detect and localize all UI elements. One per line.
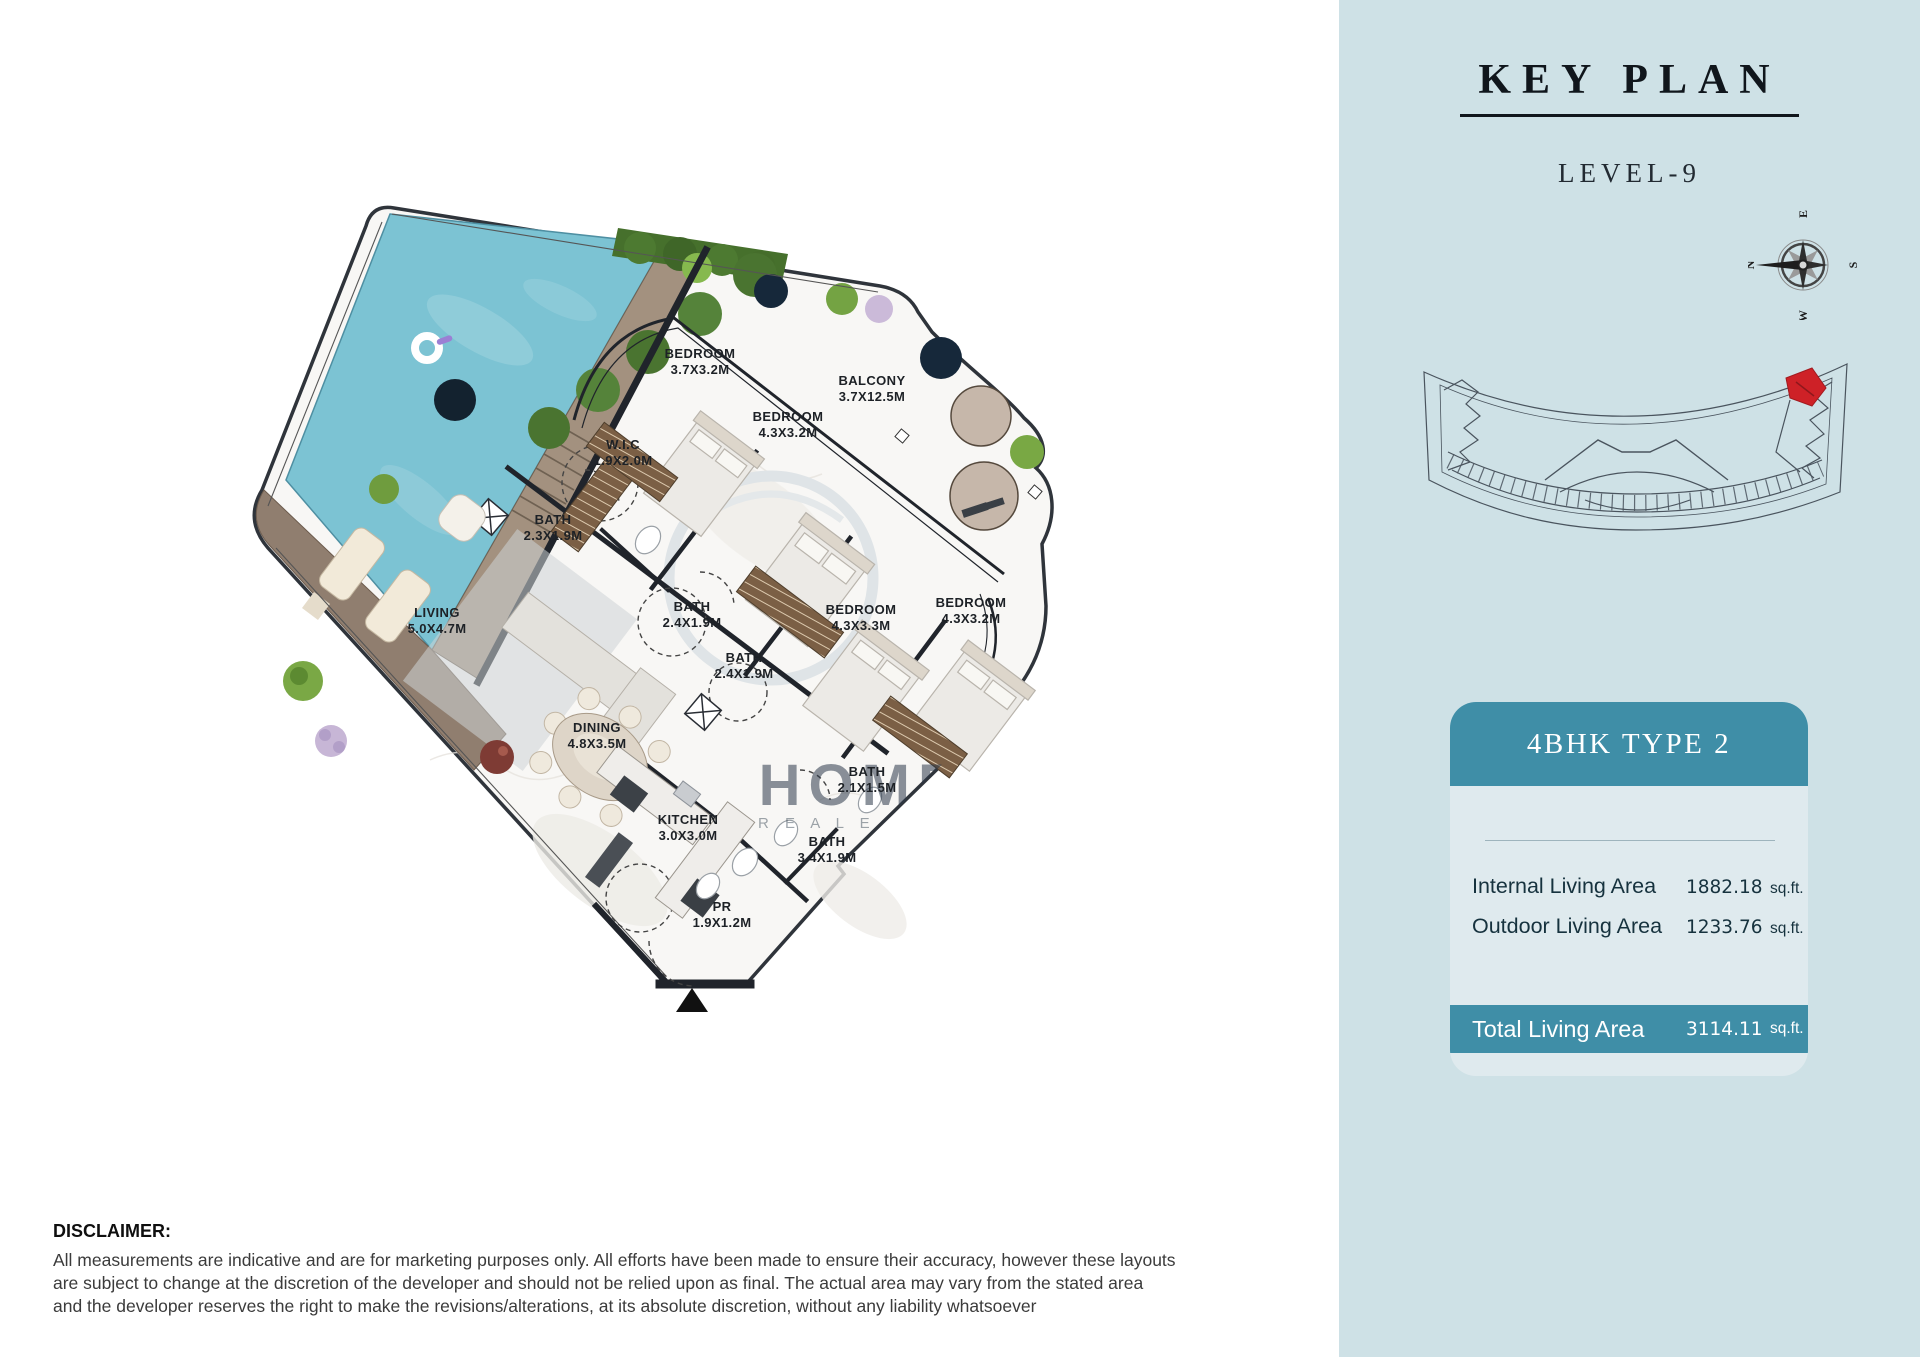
room-dimensions: 5.0X4.7M <box>408 621 467 636</box>
info-panel: KEY PLAN LEVEL-9 N E S W <box>1339 0 1920 1357</box>
total-area-value: 3114.11 <box>1686 1019 1758 1040</box>
unit-type-header: 4BHK TYPE 2 <box>1450 702 1808 786</box>
room-dimensions: 4.3X3.2M <box>759 425 818 440</box>
planter-circle <box>920 337 962 379</box>
internal-area-label: Internal Living Area <box>1472 874 1686 899</box>
total-area-band: Total Living Area 3114.11 sq.ft. <box>1450 1005 1808 1053</box>
outdoor-area-unit: sq.ft. <box>1770 920 1804 938</box>
room-dimensions: 3.4X1.9M <box>798 850 857 865</box>
svg-text:S: S <box>1846 261 1858 268</box>
room-dimensions: 3.0X3.0M <box>659 828 718 843</box>
room-dimensions: 2.4X1.9M <box>715 666 774 681</box>
outdoor-area-row: Outdoor Living Area 1233.76 sq.ft. <box>1450 914 1808 939</box>
room-label: BALCONY <box>838 373 905 388</box>
key-plan-title: KEY PLAN <box>1339 56 1920 117</box>
outdoor-area-value: 1233.76 <box>1686 917 1758 938</box>
disclaimer-line: All measurements are indicative and are … <box>53 1249 1333 1272</box>
tree-icon <box>1010 435 1044 469</box>
room-dimensions: 3.7X12.5M <box>839 389 905 404</box>
level-label: LEVEL-9 <box>1339 158 1920 189</box>
room-dimensions: 1.9X2.0M <box>594 453 653 468</box>
room-label: DINING <box>573 720 621 735</box>
room-dimensions: 2.3X1.9M <box>524 528 583 543</box>
room-dimensions: 4.8X3.5M <box>568 736 627 751</box>
room-label: BEDROOM <box>753 409 824 424</box>
flower-bush-icon <box>315 725 347 757</box>
room-dimensions: 4.3X3.2M <box>942 611 1001 626</box>
seating-pod <box>950 462 1018 530</box>
room-dimensions: 4.3X3.3M <box>832 618 891 633</box>
unit-summary-card: 4BHK TYPE 2 Internal Living Area 1882.18… <box>1450 702 1808 1076</box>
flower-bush-icon <box>865 295 893 323</box>
floor-plan: HOMES R E A L E S T A T E BEDROOM3.7X3.2… <box>0 0 1339 1357</box>
floor-plan-svg: HOMES R E A L E S T A T E BEDROOM3.7X3.2… <box>0 0 1339 1357</box>
planter-circle <box>754 274 788 308</box>
room-dimensions: 2.4X1.9M <box>663 615 722 630</box>
room-dimensions: 3.7X3.2M <box>671 362 730 377</box>
total-area-label: Total Living Area <box>1472 1016 1686 1043</box>
bush-icon <box>369 474 399 504</box>
room-label: BEDROOM <box>936 595 1007 610</box>
room-label: KITCHEN <box>658 812 719 827</box>
room-label: BEDROOM <box>665 346 736 361</box>
room-label: PR <box>713 899 732 914</box>
disclaimer-line: are subject to change at the discretion … <box>53 1272 1333 1295</box>
outdoor-area-label: Outdoor Living Area <box>1472 914 1686 939</box>
disclaimer-line: and the developer reserves the right to … <box>53 1295 1333 1318</box>
disclaimer: DISCLAIMER: All measurements are indicat… <box>53 1221 1333 1318</box>
unit-type-label: 4BHK TYPE 2 <box>1527 728 1731 761</box>
room-label: BATH <box>674 599 711 614</box>
internal-area-row: Internal Living Area 1882.18 sq.ft. <box>1450 874 1808 899</box>
room-label: LIVING <box>414 605 460 620</box>
compass-icon: N E S W <box>1748 210 1858 320</box>
room-label: W.I.C <box>606 437 640 452</box>
divider <box>1485 840 1775 841</box>
key-plan-diagram <box>1395 352 1895 537</box>
internal-area-value: 1882.18 <box>1686 877 1758 898</box>
svg-text:R E A L E S T A T E: R E A L E S T A T E <box>758 815 1002 832</box>
room-label: BATH <box>535 512 572 527</box>
svg-text:W: W <box>1796 310 1810 320</box>
svg-text:N: N <box>1748 260 1757 269</box>
room-label: BATH <box>849 764 886 779</box>
room-label: BATH <box>809 834 846 849</box>
entry-arrow-icon <box>676 988 708 1012</box>
room-label: BATH <box>726 650 763 665</box>
svg-text:E: E <box>1796 210 1810 218</box>
seating-pod <box>951 386 1011 446</box>
disclaimer-title: DISCLAIMER: <box>53 1221 1333 1242</box>
internal-area-unit: sq.ft. <box>1770 880 1804 898</box>
room-dimensions: 2.1X1.5M <box>838 780 897 795</box>
room-label: BEDROOM <box>826 602 897 617</box>
coffee-table <box>480 740 514 774</box>
room-dimensions: 1.9X1.2M <box>693 915 752 930</box>
total-area-unit: sq.ft. <box>1770 1020 1804 1038</box>
spa-circle <box>434 379 476 421</box>
